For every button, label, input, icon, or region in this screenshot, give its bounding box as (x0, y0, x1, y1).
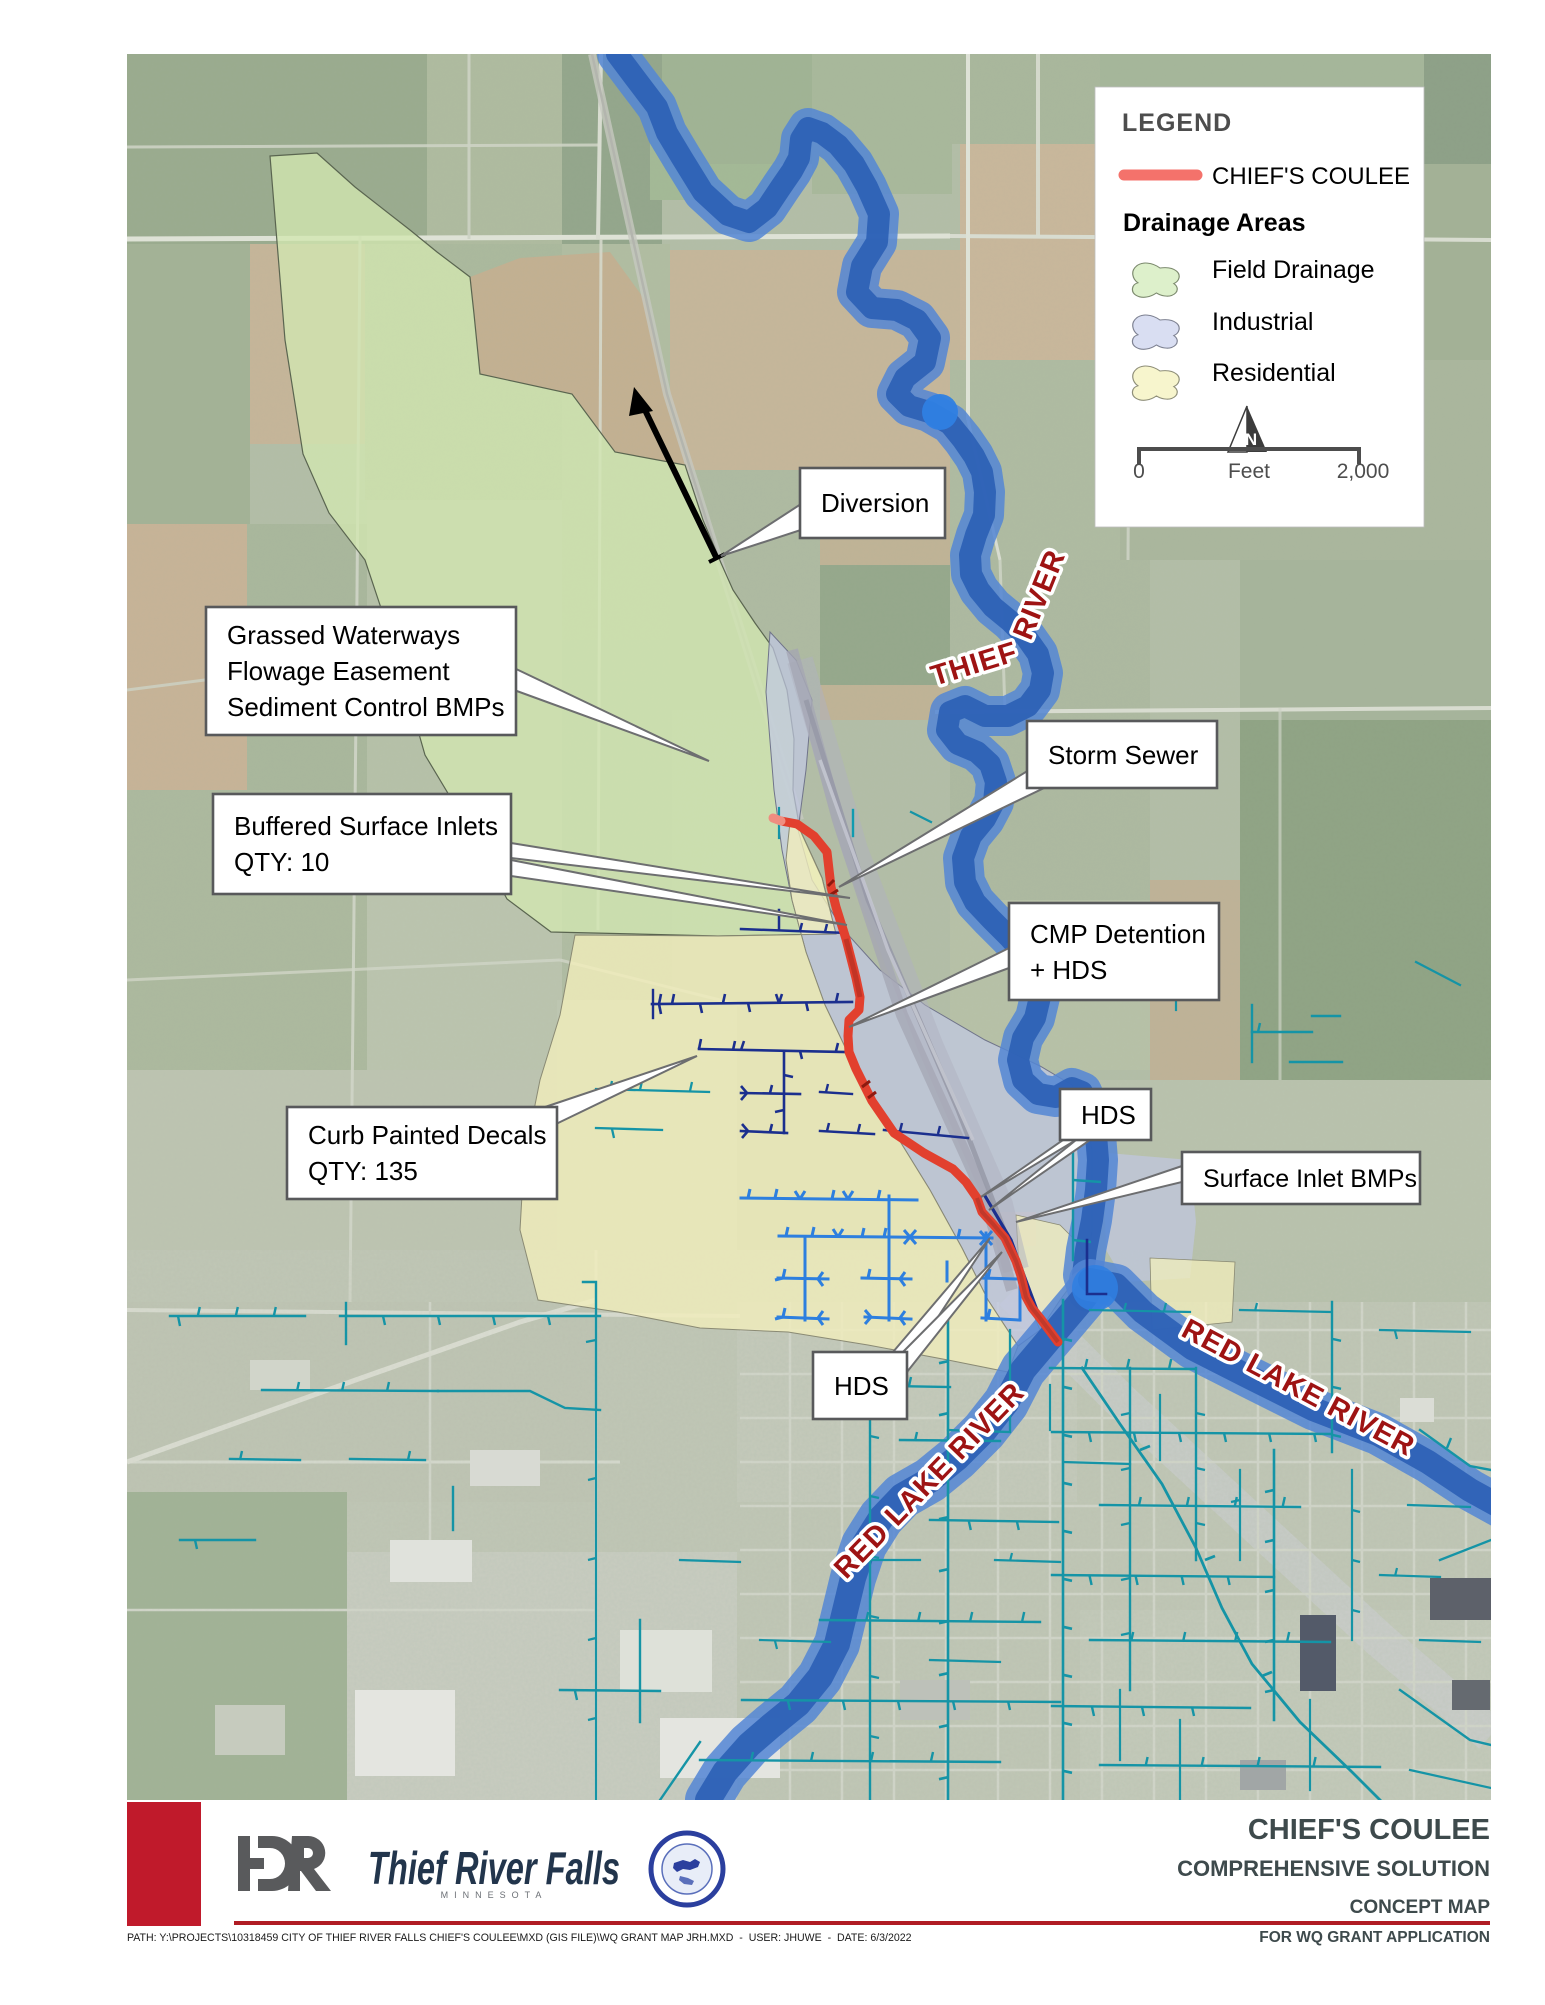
svg-text:QTY: 135: QTY: 135 (308, 1156, 418, 1186)
svg-text:HDS: HDS (834, 1371, 889, 1401)
svg-text:CHIEF'S COULEE: CHIEF'S COULEE (1248, 1814, 1490, 1846)
svg-text:PATH: Y:\PROJECTS\10318459 CIT: PATH: Y:\PROJECTS\10318459 CITY OF THIEF… (127, 1932, 912, 1944)
svg-text:HDS: HDS (1081, 1100, 1136, 1130)
svg-text:COMPREHENSIVE SOLUTION: COMPREHENSIVE SOLUTION (1177, 1856, 1490, 1881)
svg-text:CONCEPT MAP: CONCEPT MAP (1350, 1897, 1491, 1918)
svg-text:Field Drainage: Field Drainage (1212, 256, 1375, 284)
svg-text:Buffered Surface Inlets: Buffered Surface Inlets (234, 811, 498, 841)
svg-text:CMP Detention: CMP Detention (1030, 919, 1206, 949)
svg-text:QTY: 10: QTY: 10 (234, 847, 329, 877)
svg-text:Surface Inlet BMPs: Surface Inlet BMPs (1203, 1165, 1417, 1193)
svg-text:Storm Sewer: Storm Sewer (1048, 740, 1199, 770)
svg-text:N: N (1245, 430, 1257, 449)
svg-text:Flowage Easement: Flowage Easement (227, 656, 450, 686)
svg-text:Grassed Waterways: Grassed Waterways (227, 620, 460, 650)
svg-text:Diversion: Diversion (821, 488, 929, 518)
svg-text:Sediment Control BMPs: Sediment Control BMPs (227, 692, 504, 722)
svg-text:0: 0 (1133, 460, 1145, 483)
svg-text:MINNESOTA: MINNESOTA (441, 1890, 548, 1900)
svg-text:Feet: Feet (1228, 460, 1270, 483)
svg-text:FOR WQ GRANT APPLICATION: FOR WQ GRANT APPLICATION (1259, 1929, 1490, 1946)
svg-text:Drainage Areas: Drainage Areas (1123, 209, 1306, 237)
svg-text:Industrial: Industrial (1212, 308, 1313, 336)
svg-text:CHIEF'S COULEE: CHIEF'S COULEE (1212, 163, 1410, 190)
svg-text:Curb Painted Decals: Curb Painted Decals (308, 1120, 546, 1150)
svg-text:2,000: 2,000 (1337, 460, 1390, 483)
svg-text:LEGEND: LEGEND (1122, 109, 1232, 137)
svg-text:+ HDS: + HDS (1030, 955, 1107, 985)
svg-text:Thief River Falls: Thief River Falls (368, 1842, 620, 1894)
svg-text:Residential: Residential (1212, 359, 1336, 387)
